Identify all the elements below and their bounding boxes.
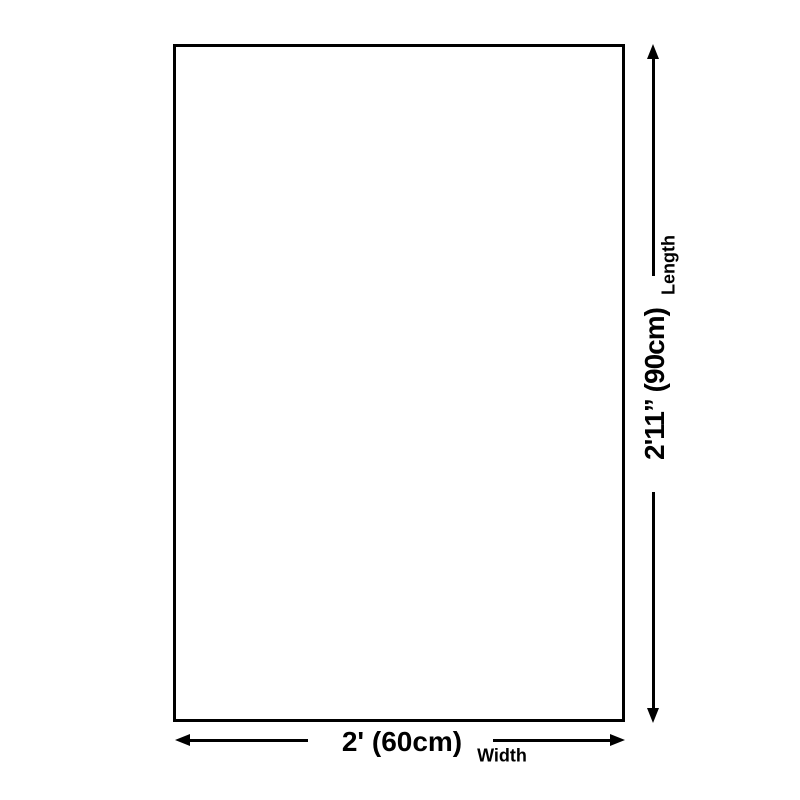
width-label: Width [477, 746, 527, 767]
length-value: 2'11” (90cm) [639, 308, 671, 460]
width-dimension-line-right-segment [493, 739, 617, 742]
width-dimension-line-left-segment [183, 739, 308, 742]
arrow-right-icon [610, 734, 625, 746]
length-dimension-line-lower-segment [652, 492, 655, 716]
width-value: 2' (60cm) [342, 726, 462, 758]
length-dimension-line-upper-segment [652, 52, 655, 276]
arrow-left-icon [175, 734, 190, 746]
arrow-down-icon [647, 708, 659, 723]
arrow-up-icon [647, 44, 659, 59]
product-outline [173, 44, 625, 722]
dimension-diagram: 2'11” (90cm) Length 2' (60cm) Width [0, 0, 800, 800]
length-label: Length [659, 235, 680, 295]
